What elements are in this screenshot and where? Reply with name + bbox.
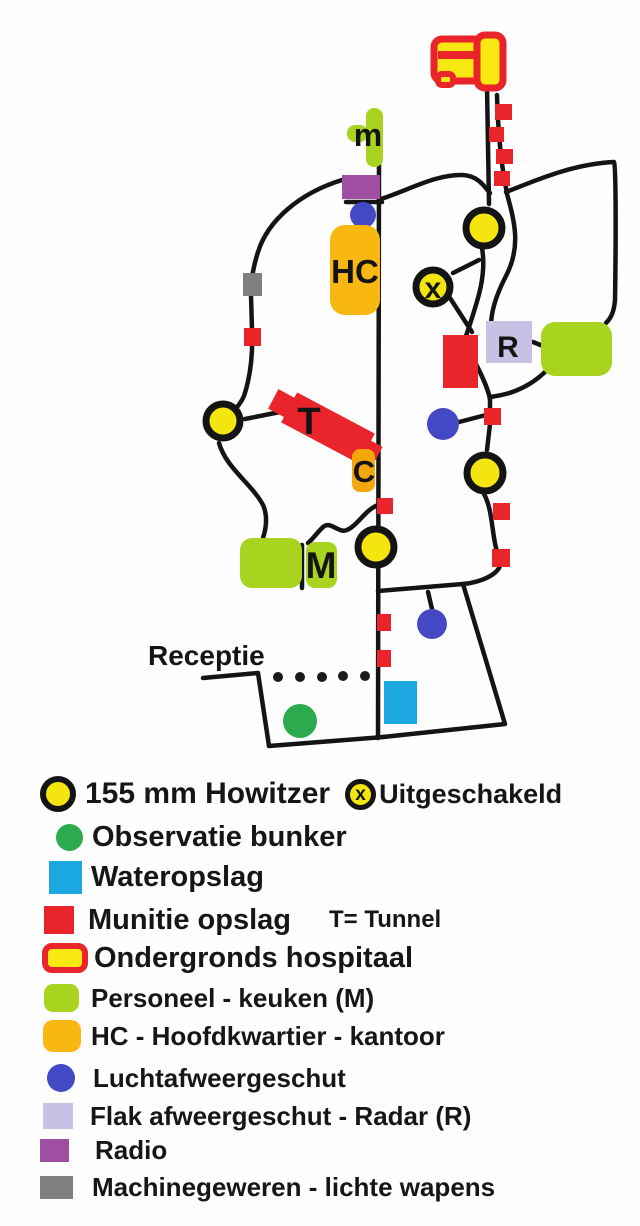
- legend-note-tunnel: T= Tunnel: [329, 906, 441, 934]
- hospital-icon: [42, 943, 88, 973]
- legend-row-antiaircraft: Luchtafweergeschut: [47, 1062, 346, 1094]
- legend-row-radio: Radio: [40, 1137, 167, 1163]
- path-line: [219, 443, 266, 538]
- munition-marker: [494, 171, 510, 186]
- personnel-building-west: [240, 538, 302, 588]
- antiaircraft-icon: [47, 1064, 75, 1092]
- legend-row-observation: Observatie bunker: [56, 818, 347, 856]
- legend-label-water: Wateropslag: [91, 863, 264, 892]
- path-network: [203, 86, 616, 746]
- path-line: [487, 86, 489, 204]
- legend-label-headquarters: HC - Hoofdkwartier - kantoor: [91, 1023, 445, 1049]
- howitzer-marker: [467, 455, 503, 491]
- bunker-site-map-page: m HC x R T C M Receptie 155 mm Howitzer …: [0, 0, 640, 1226]
- howitzer-marker: [358, 529, 394, 565]
- site-map: m HC x R T C M Receptie: [0, 0, 640, 766]
- mg-marker: [243, 273, 262, 296]
- munition-marker: [244, 328, 261, 346]
- path-line: [490, 372, 545, 408]
- legend-row-water: Wateropslag: [49, 858, 264, 896]
- hq-label: HC: [331, 253, 379, 290]
- munition-marker: [443, 335, 478, 388]
- path-line: [506, 162, 616, 323]
- disabled-howitzer-label: x: [425, 272, 442, 305]
- path-line: [450, 298, 472, 332]
- legend-row-howitzer: 155 mm Howitzer x Uitgeschakeld: [40, 774, 562, 814]
- reception-label: Receptie: [148, 640, 265, 671]
- howitzer-icon: [40, 776, 76, 812]
- legend-label-radio: Radio: [95, 1137, 167, 1163]
- aa-gun-marker: [427, 408, 459, 440]
- machineguns-icon: [40, 1176, 73, 1199]
- path-line: [453, 260, 479, 273]
- munition-marker: [496, 149, 513, 164]
- observation-bunker-marker: [283, 704, 317, 738]
- aa-gun-marker: [350, 202, 376, 228]
- munition-marker: [484, 408, 501, 425]
- howitzer-marker: [466, 210, 502, 246]
- observation-bunker-icon: [56, 824, 83, 851]
- headquarters-icon: [43, 1020, 81, 1052]
- legend-label-observation: Observatie bunker: [92, 823, 347, 852]
- legend-row-hospital: Ondergronds hospitaal: [42, 940, 413, 976]
- kitchen-label: M: [306, 545, 337, 586]
- munition-marker: [377, 498, 393, 514]
- munition-storage-icon: [44, 906, 74, 934]
- canteen-label: C: [353, 454, 375, 489]
- aa-gun-marker: [417, 609, 447, 639]
- personnel-building-east: [541, 322, 612, 376]
- path-line: [487, 424, 490, 450]
- path-line: [229, 180, 342, 415]
- legend-label-hospital: Ondergronds hospitaal: [94, 944, 413, 973]
- hospital-marker: [434, 35, 503, 88]
- path-line: [476, 364, 490, 400]
- munition-marker: [495, 104, 512, 120]
- legend-label-antiaircraft: Luchtafweergeschut: [93, 1065, 346, 1091]
- kitchen-small-label: m: [354, 117, 382, 153]
- munition-marker: [377, 614, 391, 631]
- legend-label-disabled: Uitgeschakeld: [379, 781, 562, 808]
- munition-marker: [489, 127, 504, 142]
- path-line: [381, 175, 490, 199]
- personnel-icon: [44, 984, 79, 1012]
- water-storage-icon: [49, 861, 82, 894]
- radio-marker: [342, 175, 380, 199]
- legend-row-headquarters: HC - Hoofdkwartier - kantoor: [43, 1019, 445, 1053]
- legend-label-personnel: Personeel - keuken (M): [91, 985, 374, 1011]
- legend-label-flak: Flak afweergeschut - Radar (R): [90, 1103, 471, 1129]
- water-marker: [384, 681, 417, 724]
- legend-row-personnel: Personeel - keuken (M): [44, 982, 374, 1014]
- legend-label-munition: Munitie opslag: [88, 906, 291, 935]
- flak-radar-icon: [43, 1103, 73, 1129]
- legend-row-munition: Munitie opslag T= Tunnel: [44, 902, 441, 938]
- radio-icon: [40, 1139, 69, 1162]
- radar-label: R: [497, 331, 519, 364]
- legend-row-machineguns: Machinegeweren - lichte wapens: [40, 1174, 495, 1200]
- path-line: [459, 415, 486, 422]
- legend-label-machineguns: Machinegeweren - lichte wapens: [92, 1174, 495, 1200]
- legend-row-flak: Flak afweergeschut - Radar (R): [43, 1102, 471, 1130]
- reception-dots: [273, 671, 370, 682]
- howitzer-marker: [206, 404, 240, 438]
- munition-marker: [377, 650, 391, 667]
- tunnel-label: T: [297, 401, 320, 443]
- munition-marker: [492, 549, 510, 567]
- path-line: [428, 592, 432, 609]
- legend-label-howitzer: 155 mm Howitzer: [85, 779, 330, 809]
- disabled-howitzer-icon: x: [345, 779, 376, 810]
- munition-marker: [493, 503, 510, 520]
